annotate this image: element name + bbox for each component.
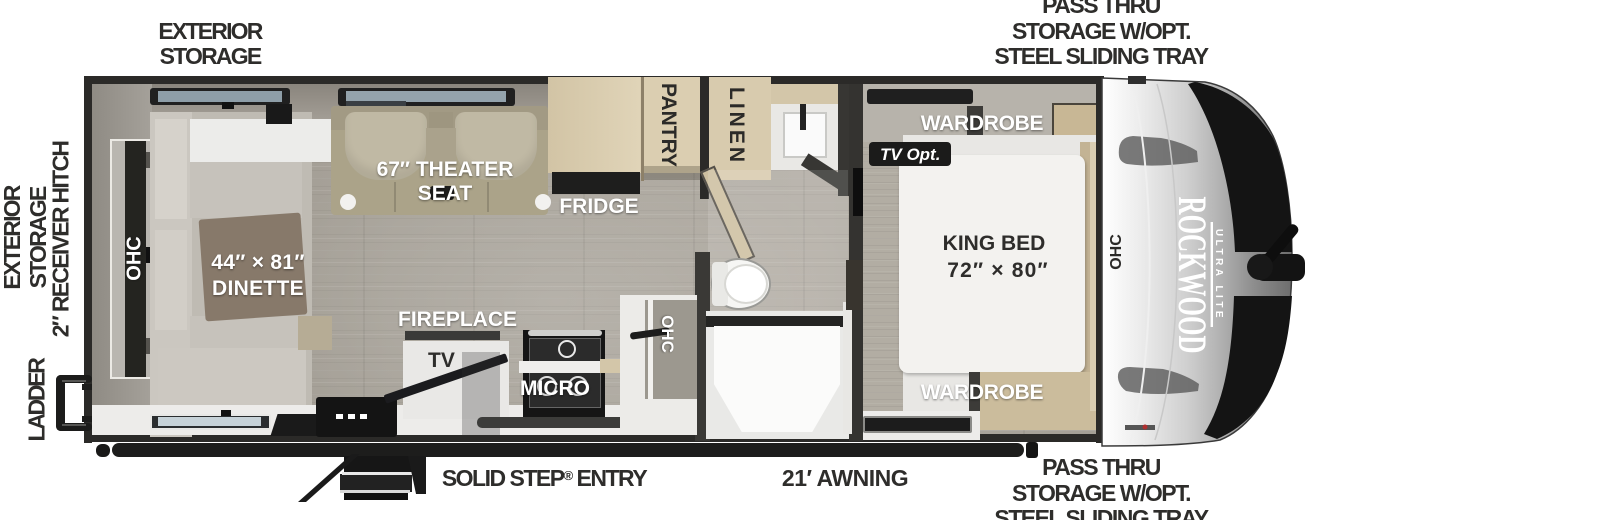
svg-text:ULTRA LITE: ULTRA LITE xyxy=(1213,229,1224,321)
svg-text:ROCKWOOD: ROCKWOOD xyxy=(1169,197,1214,354)
